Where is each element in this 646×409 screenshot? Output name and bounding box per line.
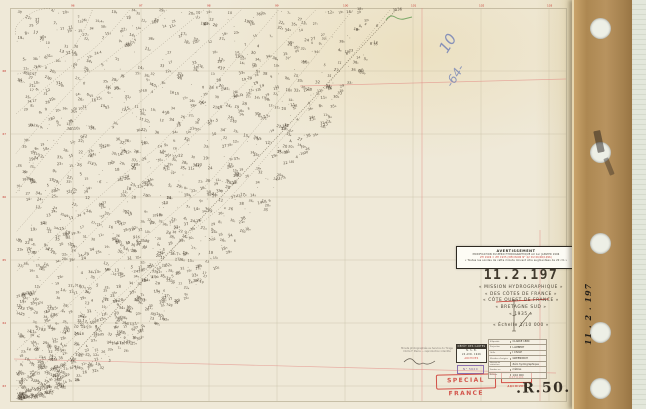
sounding: 29₉ <box>22 170 28 174</box>
sounding: 31 <box>180 266 185 271</box>
sounding-dot <box>57 30 58 31</box>
sounding: 6 <box>215 86 218 90</box>
sounding: 20₀ <box>61 363 67 367</box>
sounding-dot <box>39 395 40 396</box>
sounding-dot <box>31 244 32 245</box>
sounding-dot <box>127 202 128 203</box>
sounding-dot <box>26 340 27 341</box>
sounding-dot <box>121 316 122 317</box>
sounding-dot <box>304 135 305 136</box>
sounding: 28 <box>168 303 173 308</box>
sounding: 16 <box>135 150 139 154</box>
sounding-dot <box>207 140 208 141</box>
sounding-dot <box>125 173 126 174</box>
sounding: 37₄ <box>90 338 97 343</box>
sounding: 20₆ <box>188 11 195 15</box>
sounding: 4 <box>256 44 260 49</box>
sounding: 11 <box>47 230 51 234</box>
sounding: 20₆ <box>62 257 68 261</box>
sounding: 10 <box>125 240 129 244</box>
sounding: 15₁ <box>96 96 103 101</box>
sounding-dot <box>155 223 156 224</box>
sounding-dot <box>49 124 50 125</box>
sounding-dot <box>315 51 316 52</box>
sounding: 11 <box>218 198 223 203</box>
sounding-dot <box>247 227 248 228</box>
sounding-dot <box>73 357 74 358</box>
strip-handwritten-ref: 11 . 2 . 197 <box>583 215 593 345</box>
sounding: 28₉ <box>111 77 118 82</box>
sounding: 27₅ <box>313 22 319 26</box>
sounding: 35 <box>55 237 61 242</box>
sounding-dot <box>177 287 178 288</box>
sounding: 22₀ <box>71 202 78 208</box>
punch-hole <box>590 18 611 39</box>
sounding: 12 <box>45 88 51 93</box>
sounding-dot <box>134 52 135 53</box>
sounding: 19₃ <box>167 162 173 166</box>
sounding: 34₁ <box>144 278 151 283</box>
sounding: 12₉ <box>317 88 324 93</box>
sounding: 7 <box>52 208 55 212</box>
sounding: 33 <box>158 219 162 224</box>
sounding-dot <box>326 37 327 38</box>
sounding: 18 <box>176 123 182 127</box>
sounding: 33₈ <box>108 347 114 351</box>
sounding: 18₀ <box>28 123 35 127</box>
sounding: 24₆ <box>40 220 47 225</box>
sounding: 31 <box>160 303 165 308</box>
sounding-dot <box>124 102 125 103</box>
sounding: 11 <box>160 255 165 260</box>
sounding-dot <box>102 226 103 227</box>
sounding: 35₁ <box>16 184 22 188</box>
sounding-dot <box>77 267 78 268</box>
sounding: 15₀ <box>213 256 219 260</box>
sounding: 16 <box>300 151 305 156</box>
sounding: 16 <box>91 97 97 102</box>
sounding-dot <box>20 305 21 306</box>
grid-label-left: 64 <box>3 321 7 325</box>
sounding-dot <box>81 297 82 298</box>
sounding: 21₄ <box>184 285 191 290</box>
sounding-dot <box>128 335 129 336</box>
sounding: 36 <box>397 6 403 11</box>
sounding: 34₉ <box>255 58 261 62</box>
sounding-dot <box>90 211 91 212</box>
date-stamp-line: ARCHIVES <box>457 357 486 361</box>
sounding-dot <box>294 69 295 70</box>
sounding: 32₈ <box>92 367 100 373</box>
blue-pencil-mark-top: 10 <box>435 30 460 56</box>
sounding: 8₅ <box>318 103 323 109</box>
sounding-dot <box>163 59 164 60</box>
sounding: 30 <box>215 95 219 99</box>
sounding-dot <box>234 26 235 27</box>
geodesy-value: mètres <box>511 368 546 371</box>
sounding: 33₄ <box>286 132 293 138</box>
sounding-dot <box>76 369 77 370</box>
sounding: 14₃ <box>206 9 213 14</box>
sounding: 8 <box>247 106 250 110</box>
sounding-dot <box>81 325 82 326</box>
sounding-dot <box>112 97 113 98</box>
sounding: 16₆ <box>124 175 131 180</box>
sounding-dot <box>86 125 87 126</box>
avertissement-stamp: AVERTISSEMENT MODIFICATION DU ZÉRO HYDRO… <box>456 246 576 269</box>
sounding: 27₄ <box>219 36 226 41</box>
sounding-dot <box>235 199 236 200</box>
sounding: 7₀ <box>140 293 145 297</box>
sounding-dot <box>310 105 311 106</box>
sounding-dot <box>250 212 251 213</box>
sounding-dot <box>52 283 53 284</box>
sounding: 14 <box>158 144 162 148</box>
sounding: 12₈ <box>93 353 99 357</box>
sounding: 38₁ <box>23 262 30 267</box>
sounding: 18 <box>116 283 122 289</box>
photo-note-line: Cliché F. Pierre — reproduction interdit… <box>396 350 458 353</box>
sounding-dot <box>229 233 230 234</box>
sounding-dot <box>224 156 225 157</box>
sounding: 22₂ <box>141 127 148 133</box>
sounding: 29₃ <box>131 249 138 253</box>
grid-label-left: 67 <box>3 132 7 136</box>
sounding: 18 <box>115 167 121 172</box>
sounding-dot <box>93 347 94 348</box>
sounding: 38₉ <box>287 40 294 45</box>
sounding-dot <box>254 139 255 140</box>
sounding: 37₈ <box>57 155 64 160</box>
sounding: 16 <box>112 272 117 277</box>
sounding: 37 <box>183 221 189 227</box>
sounding: 16₈ <box>117 178 124 182</box>
sounding: 33₇ <box>203 144 210 149</box>
geodesy-value: CLARKE 1880 <box>511 340 546 343</box>
sounding: 36₀ <box>39 393 47 399</box>
sounding: 36₉ <box>256 12 263 16</box>
sounding: 34₃ <box>35 190 43 196</box>
sounding-dot <box>163 274 164 275</box>
sounding: 18₂ <box>320 124 327 130</box>
sounding: 35₀ <box>330 104 337 109</box>
sounding-dot <box>160 195 161 196</box>
sounding: 34 <box>169 117 175 122</box>
sounding-dot <box>193 261 194 262</box>
sounding-dot <box>170 297 171 298</box>
sounding-dot <box>279 91 280 92</box>
sounding: 27 <box>203 274 208 279</box>
sounding-dot <box>90 311 91 312</box>
sounding: 38₁ <box>264 97 271 102</box>
sounding: 22₁ <box>121 27 128 31</box>
sounding-dot <box>114 298 115 299</box>
sounding-dot <box>47 367 48 368</box>
sounding: 25₄ <box>72 187 78 191</box>
sounding-dot <box>132 334 133 335</box>
sounding: 30₇ <box>230 218 237 224</box>
sounding: 13 <box>85 301 91 306</box>
sounding: 20₃ <box>133 163 140 167</box>
sounding: 9₈ <box>52 168 57 174</box>
sounding: 20₅ <box>55 108 62 113</box>
sounding: 4 <box>308 101 311 105</box>
sounding-dot <box>42 202 43 203</box>
sounding: 26 <box>180 115 185 120</box>
sounding: 9 <box>197 117 201 123</box>
sounding: 29₅ <box>176 183 184 190</box>
sounding: 30 <box>141 245 146 250</box>
sounding: 18₃ <box>156 213 163 217</box>
sounding: 35₇ <box>203 91 210 96</box>
sounding: 22₆ <box>62 252 68 257</box>
sounding-dot <box>86 278 87 279</box>
geodesy-row: Échelle1/10 000 <box>489 373 546 378</box>
sounding: 19₃ <box>19 299 26 304</box>
sounding: 29 <box>214 182 219 187</box>
sounding: 14₂ <box>193 206 201 212</box>
sounding-dot <box>162 87 163 88</box>
sounding-dot <box>290 57 291 58</box>
sounding: 26 <box>305 147 310 151</box>
sounding: 32 <box>315 79 321 84</box>
sounding-dot <box>62 254 63 255</box>
sounding-dot <box>175 302 176 303</box>
grid-label-top: 99 <box>275 4 279 8</box>
sounding-dot <box>170 225 171 226</box>
sounding-dot <box>224 216 225 217</box>
sounding-dot <box>291 89 292 90</box>
sounding: 36 <box>351 68 356 72</box>
sounding: 12₃ <box>265 139 273 145</box>
sounding-dot <box>102 315 103 316</box>
sounding-dot <box>348 66 349 67</box>
sounding-dot <box>100 216 101 217</box>
sounding-dot <box>97 312 98 313</box>
sounding: 33₅ <box>238 70 245 76</box>
sounding: 10 <box>46 41 50 45</box>
grid-label-top: 101 <box>411 4 417 8</box>
sounding-dot <box>20 239 21 240</box>
sounding: 15 <box>69 164 73 168</box>
sounding: 36₂ <box>148 37 155 41</box>
sounding: 38₆ <box>339 39 345 43</box>
sounding-dot <box>332 99 333 100</box>
sounding-dot <box>182 192 183 193</box>
scale-note: « Échelle 1/10 000 » <box>462 323 580 328</box>
sounding-dot <box>22 362 23 363</box>
sounding: 27 <box>310 35 316 41</box>
ink-stamp-smudge <box>603 157 614 176</box>
sounding: 34 <box>171 106 175 110</box>
sounding-dot <box>148 162 149 163</box>
sounding: 34₉ <box>284 27 291 33</box>
sounding: 35₂ <box>291 22 298 26</box>
sounding: 16₉ <box>238 109 245 114</box>
sounding: 34₁ <box>119 306 126 310</box>
sounding: 28 <box>242 100 248 106</box>
sounding-dot <box>155 237 156 238</box>
sounding: 23₇ <box>73 342 80 347</box>
sounding: 29 <box>207 209 213 214</box>
sounding-dot <box>46 377 47 378</box>
sounding-dot <box>16 398 17 399</box>
sounding: 5 <box>35 275 38 279</box>
sounding-dot <box>111 274 112 275</box>
geodesy-label: Méridien d'origine <box>489 358 511 360</box>
sounding: 26₇ <box>69 257 76 262</box>
sounding: 18₆ <box>292 103 299 108</box>
sounding: 4 <box>364 22 367 26</box>
sounding: 10₈ <box>274 64 280 68</box>
sounding: 18 <box>19 353 24 358</box>
sounding: 24₀ <box>253 153 260 157</box>
sounding-dot <box>312 51 313 52</box>
sounding-dot <box>150 167 151 168</box>
sounding: 35₃ <box>103 80 109 84</box>
sounding: 20₉ <box>62 10 69 15</box>
sounding-dot <box>220 84 221 85</box>
sounding-dot <box>83 319 84 320</box>
sounding: 22₈ <box>85 352 92 357</box>
sounding-dot <box>281 11 282 12</box>
sounding-dot <box>207 199 208 200</box>
sounding: 29₁ <box>53 178 61 185</box>
sounding: 21₀ <box>63 367 69 371</box>
sounding: 6₅ <box>34 146 39 151</box>
sounding: 28 <box>212 22 218 28</box>
sounding: 20 <box>155 275 159 279</box>
sounding: 35 <box>58 356 63 360</box>
sounding: 5 <box>96 283 100 288</box>
sounding: 5₆ <box>167 183 172 188</box>
sounding-dot <box>225 182 226 183</box>
sounding-dot <box>124 91 125 92</box>
sounding: 25 <box>142 157 148 162</box>
sounding-dot <box>273 187 274 188</box>
sounding: 27₇ <box>191 246 198 251</box>
sounding-dot <box>52 355 53 356</box>
sounding: 30₅ <box>254 111 261 117</box>
sounding: 7 <box>244 43 247 47</box>
sounding: 12₉ <box>327 10 334 15</box>
sounding-dot <box>201 241 202 242</box>
sounding-dot <box>29 162 30 163</box>
title-line: « MISSION HYDROGRAPHIQUE » <box>462 285 580 290</box>
sounding: 18₅ <box>63 148 70 153</box>
sounding: 8₃ <box>24 30 29 36</box>
sounding: 8 <box>202 85 204 89</box>
sounding-dot <box>48 47 49 48</box>
sounding-dot <box>20 393 21 394</box>
sounding-dot <box>268 179 269 180</box>
sounding: 23₄ <box>234 30 241 35</box>
geodesy-label: Ellipsoïde <box>489 341 511 343</box>
sounding: 35 <box>78 353 83 358</box>
sounding: 19₆ <box>150 107 157 112</box>
sounding: 17₄ <box>52 337 59 343</box>
punch-hole <box>590 233 611 254</box>
sounding: 14₆ <box>239 61 245 65</box>
sounding-dot <box>102 221 103 222</box>
sounding: 38 <box>305 133 311 139</box>
sounding: 32₅ <box>294 88 301 92</box>
sounding: 5 <box>108 358 111 362</box>
sounding: 18₀ <box>140 219 146 224</box>
sounding-dot <box>206 208 207 209</box>
sounding: 22 <box>223 135 228 140</box>
sounding: 32 <box>258 170 263 174</box>
sounding-dot <box>83 241 84 242</box>
sounding-dot <box>205 236 206 237</box>
sounding: 6 <box>173 139 176 143</box>
sounding: 31 <box>83 235 87 239</box>
sounding: 35₄ <box>111 290 118 296</box>
sounding-dot <box>189 129 190 130</box>
sounding-dot <box>210 258 211 259</box>
sounding: 23₃ <box>37 153 45 159</box>
sounding-dot <box>282 101 283 102</box>
sounding-dot <box>17 41 18 42</box>
sounding: 9₉ <box>164 143 169 147</box>
sounding-dot <box>177 272 178 273</box>
sounding-dot <box>131 45 132 46</box>
sounding-dot <box>166 271 167 272</box>
sounding: 38₉ <box>24 138 30 142</box>
sounding: 25₈ <box>95 250 102 255</box>
sounding: 22₂ <box>78 139 85 143</box>
sounding: 15 <box>84 177 88 181</box>
scanned-survey-sheet: 25₀2726₉6₄21₆29₄10115₀13₃24133212₆22₂30₇… <box>0 0 646 409</box>
grid-label-top: 97 <box>139 4 143 8</box>
sounding-dot <box>42 389 43 390</box>
sounding: 6₉ <box>35 87 40 92</box>
sounding: 7 <box>198 252 201 256</box>
geodesy-value: LAMBERT <box>511 346 546 349</box>
sounding-dot <box>149 126 150 127</box>
sounding: 18₆ <box>289 160 295 164</box>
geodesy-value: I CIVILE <box>511 351 546 354</box>
sounding: 10₀ <box>33 80 40 85</box>
sounding: 38 <box>172 230 176 234</box>
sounding: 38₁ <box>353 60 360 65</box>
sounding-dot <box>97 182 98 183</box>
sounding: 24 <box>39 301 43 305</box>
sounding-dot <box>181 12 182 13</box>
sounding-dot <box>57 261 58 262</box>
sounding: 7 <box>101 36 104 40</box>
sounding: 35₃ <box>157 158 163 163</box>
sounding: 4 <box>151 90 153 94</box>
sounding: 15 <box>256 136 262 142</box>
sounding: 6 <box>82 81 85 85</box>
sounding: 5 <box>134 38 137 42</box>
sounding: 30 <box>191 155 196 160</box>
sounding: 24 <box>94 51 99 55</box>
sounding: 12₇ <box>35 205 42 210</box>
sounding: 21₈ <box>72 52 78 56</box>
sounding-dot <box>236 95 237 96</box>
sounding: 36₀ <box>178 258 185 263</box>
sounding: 5 <box>47 183 49 187</box>
geodesy-table: EllipsoïdeCLARKE 1880ProjectionLAMBERTGr… <box>488 339 547 379</box>
sounding-dot <box>64 328 65 329</box>
sounding: 19₅ <box>104 245 110 249</box>
sounding: 26₈ <box>248 198 254 203</box>
sounding: 12 <box>154 312 159 317</box>
sounding: 12₃ <box>233 140 239 144</box>
sounding-dot <box>313 94 314 95</box>
